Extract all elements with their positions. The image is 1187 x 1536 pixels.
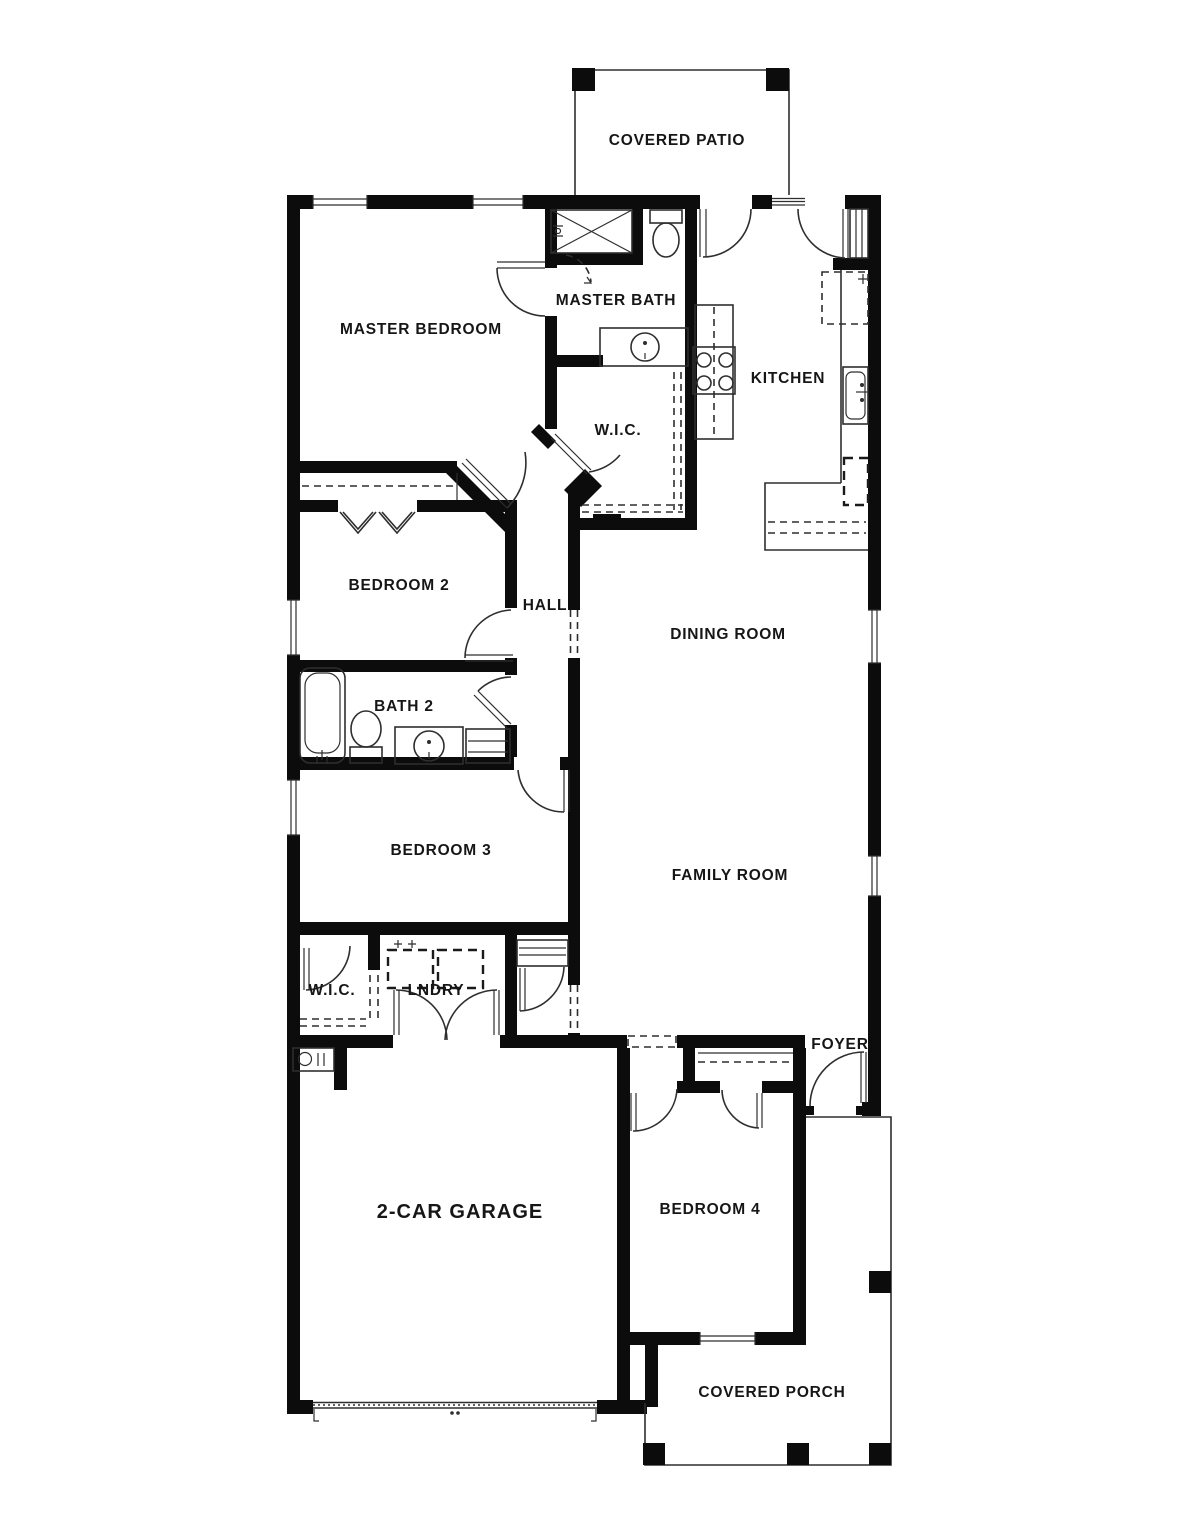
label-laundry: LNDRY xyxy=(408,982,465,999)
washer-dryer xyxy=(388,940,483,988)
porch-post xyxy=(869,1443,891,1465)
coat-closet xyxy=(627,1035,677,1048)
label-bedroom3: BEDROOM 3 xyxy=(390,842,491,859)
door-opening xyxy=(805,195,845,209)
door-opening xyxy=(720,1081,762,1093)
porch-post xyxy=(643,1443,665,1465)
bedroom4-closet-door xyxy=(722,1090,762,1128)
porch-post xyxy=(787,1443,809,1465)
toilet xyxy=(350,711,382,763)
pantry-shelves xyxy=(850,209,868,258)
master-bedroom-door xyxy=(462,452,526,508)
covered-porch xyxy=(643,1117,891,1465)
door-opening xyxy=(505,675,517,725)
label-covered-porch: COVERED PORCH xyxy=(698,1384,845,1401)
sliding-door xyxy=(772,195,805,209)
hall-rear-door xyxy=(520,967,564,1011)
cooktop-counter xyxy=(693,305,735,439)
linen-closet xyxy=(517,940,568,966)
patio-post xyxy=(572,68,595,91)
bedroom2-closet xyxy=(302,473,457,500)
cased-opening xyxy=(568,985,580,1033)
floor-plan: COVERED PATIO MASTER BEDROOM MASTER BATH… xyxy=(0,0,1187,1536)
label-dining-room: DINING ROOM xyxy=(670,626,786,643)
door-opening xyxy=(505,608,517,658)
door-opening xyxy=(514,757,560,770)
back-door xyxy=(798,209,848,258)
label-bath2: BATH 2 xyxy=(374,698,434,715)
window xyxy=(473,195,523,209)
shower xyxy=(551,210,632,253)
label-master-bedroom: MASTER BEDROOM xyxy=(340,321,502,338)
window xyxy=(287,600,300,655)
front-door xyxy=(810,1052,866,1106)
bedroom4-door xyxy=(631,1089,677,1131)
label-wic2: W.I.C. xyxy=(309,982,356,999)
label-master-wic: W.I.C. xyxy=(595,422,642,439)
kitchen-counter xyxy=(765,270,868,550)
door-opening xyxy=(700,195,752,209)
master-bath-door xyxy=(497,262,545,316)
vanity-sink xyxy=(600,328,688,366)
floor-plan-page: COVERED PATIO MASTER BEDROOM MASTER BATH… xyxy=(0,0,1187,1536)
patio-post xyxy=(766,68,789,91)
bifold-closet-doors xyxy=(340,512,415,533)
label-hall: HALL xyxy=(523,597,568,614)
garage-door xyxy=(313,1400,597,1421)
window xyxy=(868,610,881,663)
label-family-room: FAMILY ROOM xyxy=(672,867,788,884)
closet-opening xyxy=(338,500,417,512)
door-opening xyxy=(814,1102,856,1116)
window xyxy=(868,856,881,896)
door-opening xyxy=(303,935,348,948)
bedroom4-closet xyxy=(698,1053,793,1062)
master-wic-door xyxy=(551,434,620,474)
label-covered-patio: COVERED PATIO xyxy=(609,132,745,149)
dishwasher xyxy=(844,458,868,505)
label-bedroom2: BEDROOM 2 xyxy=(348,577,449,594)
cased-opening xyxy=(568,610,580,658)
refrigerator xyxy=(822,272,868,324)
label-bedroom4: BEDROOM 4 xyxy=(659,1201,760,1218)
toilet xyxy=(650,210,682,257)
window xyxy=(313,195,367,209)
bedroom3-door xyxy=(518,770,569,812)
label-garage: 2-CAR GARAGE xyxy=(377,1201,543,1223)
label-kitchen: KITCHEN xyxy=(751,370,826,387)
label-foyer: FOYER xyxy=(811,1036,868,1053)
window xyxy=(287,780,300,835)
door-opening xyxy=(630,1081,677,1093)
window xyxy=(700,1332,755,1345)
porch-post xyxy=(869,1271,891,1293)
patio-door xyxy=(700,209,751,257)
label-master-bath: MASTER BATH xyxy=(556,292,676,309)
closet-rod xyxy=(582,372,683,512)
bathtub xyxy=(300,668,345,764)
